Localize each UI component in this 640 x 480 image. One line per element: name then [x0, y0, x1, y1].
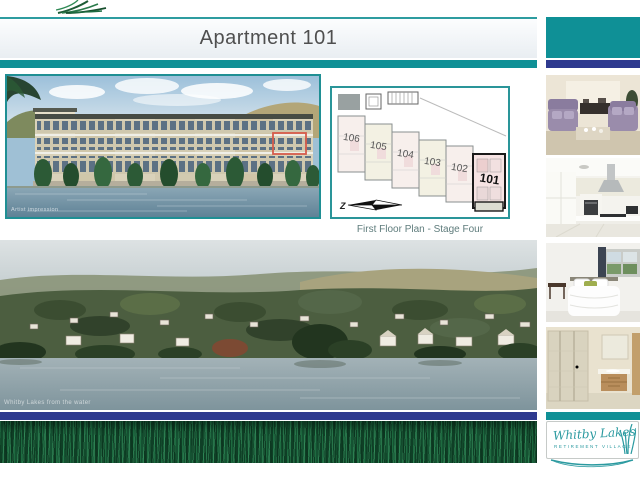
whitby-lakes-logo: Whitby Lakes RETIREMENT VILLAGE [546, 421, 639, 459]
header-bar: Apartment 101 [0, 19, 537, 58]
floor-plan-panel: 106 105 104 103 102 101 Z [330, 86, 510, 219]
render-watermark: Artist impression [11, 207, 58, 213]
photo-bedroom [546, 243, 640, 322]
building-render-image: Artist impression [5, 74, 321, 219]
village-watermark: Whitby Lakes from the water [4, 400, 91, 406]
floor-plan-caption: First Floor Plan - Stage Four [330, 224, 510, 235]
header-accent-block [546, 17, 640, 58]
photo-kitchen [546, 158, 640, 237]
grass-band-image [0, 421, 537, 463]
photo-bathroom [546, 327, 640, 409]
north-arrow-icon: Z [339, 200, 402, 211]
logo-grass-icon [620, 424, 636, 454]
teal-stripe-bottom-right [546, 412, 640, 420]
photo-living-room [546, 75, 640, 155]
logo-name: Whitby Lakes [553, 425, 624, 443]
brochure-page: Apartment 101 [0, 0, 640, 480]
teal-stripe-top [0, 60, 537, 68]
navy-stripe-top-right [546, 60, 640, 68]
svg-text:Z: Z [339, 201, 346, 211]
logo-wave-icon [549, 458, 635, 469]
navy-stripe-bottom [0, 412, 537, 420]
grass-sprig-icon [56, 0, 108, 14]
page-title: Apartment 101 [200, 27, 338, 50]
village-photo: Whitby Lakes from the water [0, 240, 537, 410]
